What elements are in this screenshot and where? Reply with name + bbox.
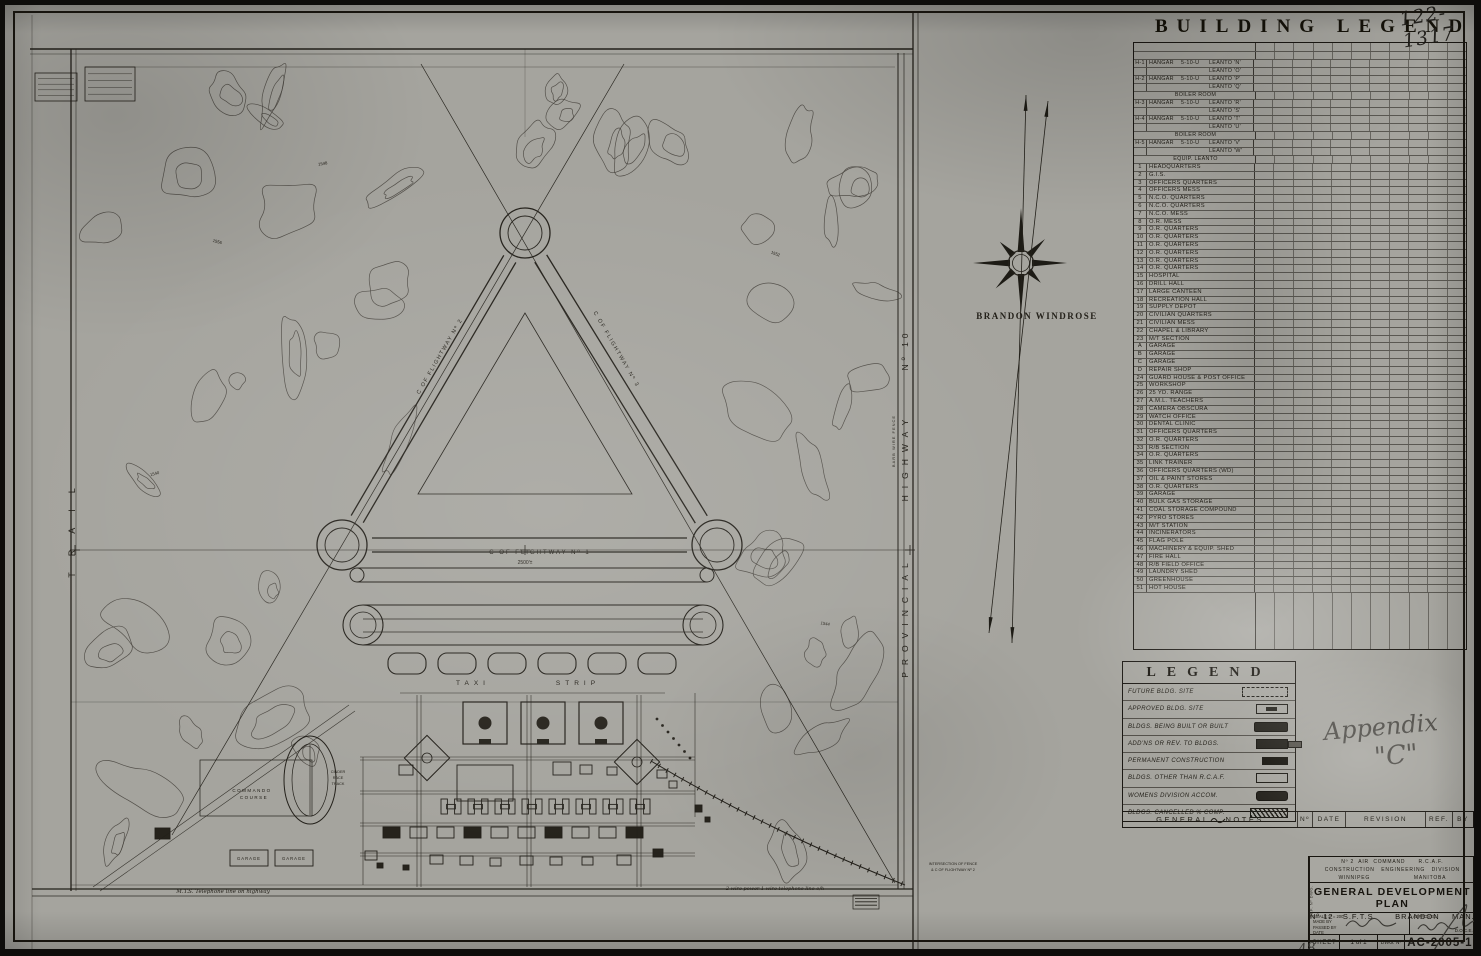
- legend-grid-cell: [1409, 273, 1428, 280]
- legend-row: AGARAGE: [1134, 343, 1466, 351]
- legend-grid-cell: [1255, 172, 1274, 179]
- map-label: & C OF FLIGHTWAY Nº 2: [931, 868, 975, 872]
- legend-grid-cell: [1313, 460, 1332, 467]
- legend-grid-cell: [1274, 351, 1293, 358]
- legend-grid-cell: [1274, 304, 1293, 311]
- legend-grid-cell: [1390, 445, 1409, 452]
- legend-grid-cell: [1313, 484, 1332, 491]
- legend-grid-cell: [1294, 258, 1313, 265]
- legend-grid-cell: [1409, 84, 1428, 91]
- legend-grid-cell: [1390, 172, 1409, 179]
- legend-grid-cell: [1352, 132, 1371, 139]
- legend-grid-cell: [1274, 265, 1293, 272]
- legend-grid-cell: [1332, 429, 1351, 436]
- legend-grid-cell: [1274, 164, 1293, 171]
- legend-grid-cell: [1313, 437, 1332, 444]
- legend-grid-cell: [1390, 468, 1409, 475]
- legend-grid-cell: [1370, 76, 1389, 83]
- legend-grid-cell: [1371, 375, 1390, 382]
- legend-grid-cell: [1274, 320, 1293, 327]
- legend-grid-cell: [1409, 312, 1428, 319]
- legend-grid-cell: [1294, 414, 1313, 421]
- legend-grid-cell: [1409, 108, 1428, 115]
- legend-grid-cell: [1254, 124, 1273, 131]
- legend-grid-cell: [1313, 507, 1332, 514]
- legend-grid-cell: [1409, 180, 1428, 187]
- legend-grid-cell: [1256, 132, 1275, 139]
- legend-grid-cell: [1275, 593, 1294, 649]
- legend-grid-cell: [1428, 398, 1447, 405]
- legend-grid-cell: [1390, 476, 1409, 483]
- legend-grid-cell: [1351, 414, 1370, 421]
- legend-grid-cell: [1390, 92, 1409, 99]
- legend-grid-cell: [1255, 562, 1274, 569]
- legend-grid-cell: [1255, 367, 1274, 374]
- legend-grid-cell: [1255, 437, 1274, 444]
- legend-grid-cell: [1428, 367, 1447, 374]
- legend-grid-cell: [1332, 258, 1351, 265]
- legend-grid-cell: [1448, 265, 1466, 272]
- legend-grid-cell: [1255, 320, 1274, 327]
- legend-row: 6N.C.O. QUARTERS: [1134, 203, 1466, 211]
- map-label: BARB WIRE FENCE: [891, 415, 896, 467]
- legend-grid-cell: [1332, 546, 1351, 553]
- legend-grid-cell: [1448, 60, 1466, 67]
- legend-grid-cell: [1371, 234, 1390, 241]
- legend-grid-cell: [1333, 43, 1352, 51]
- legend-grid-cell: [1313, 180, 1332, 187]
- legend-grid-cell: [1448, 554, 1466, 561]
- legend-grid-cell: [1390, 569, 1409, 576]
- legend-grid-cell: [1448, 359, 1466, 366]
- legend-grid-cell: [1274, 414, 1293, 421]
- legend-grid-cell: [1331, 140, 1350, 147]
- legend-grid-cell: [1410, 52, 1429, 60]
- legend-grid-cell: [1409, 523, 1428, 530]
- legend-grid-cell: [1428, 452, 1447, 459]
- legend-grid-cell: [1448, 593, 1466, 649]
- legend-row: 28CAMERA OBSCURA: [1134, 406, 1466, 414]
- legend-entry-label: WOMENS DIVISION ACCOM.: [1128, 793, 1218, 799]
- legend-grid-cell: [1313, 546, 1332, 553]
- legend-row: 16DRILL HALL: [1134, 281, 1466, 289]
- dwg-no-label: DWG. Nº: [1378, 935, 1405, 949]
- legend-grid-cell: [1274, 195, 1293, 202]
- legend-grid-cell: [1313, 390, 1332, 397]
- legend-grid-cell: [1255, 484, 1274, 491]
- legend-grid-cell: [1333, 593, 1352, 649]
- legend-grid-cell: [1333, 52, 1352, 60]
- legend-grid-cell: [1313, 499, 1332, 506]
- legend-grid-cell: [1409, 421, 1428, 428]
- legend-row: 46MACHINERY & EQUIP. SHED: [1134, 546, 1466, 554]
- legend-grid-cell: [1390, 515, 1409, 522]
- legend-grid-cell: [1448, 76, 1466, 83]
- legend-grid-cell: [1332, 343, 1351, 350]
- legend-grid-cell: [1313, 468, 1332, 475]
- legend-grid-cell: [1428, 390, 1447, 397]
- legend-grid-cell: [1371, 523, 1390, 530]
- legend-row: H-2HANGAR5-10-ULEANTO 'P': [1134, 76, 1466, 84]
- legend-grid-cell: [1255, 429, 1274, 436]
- legend-grid-cell: [1313, 304, 1332, 311]
- legend-grid-cell: [1294, 281, 1313, 288]
- legend-grid-cell: [1370, 124, 1389, 131]
- legend-grid-cell: [1429, 132, 1448, 139]
- legend-grid-cell: [1332, 406, 1351, 413]
- legend-grid-cell: [1409, 375, 1428, 382]
- legend-grid-cell: [1351, 124, 1370, 131]
- legend-grid-cell: [1274, 242, 1293, 249]
- legend-grid-cell: [1371, 515, 1390, 522]
- legend-row: 31OFFICERS QUARTERS: [1134, 429, 1466, 437]
- legend-grid-cell: [1255, 546, 1274, 553]
- legend-row: 21CIVILIAN MESS: [1134, 320, 1466, 328]
- legend-grid-cell: [1371, 172, 1390, 179]
- legend-grid-cell: [1275, 92, 1294, 99]
- map-label: 1544: [820, 620, 831, 627]
- legend-grid-cell: [1331, 100, 1350, 107]
- legend-grid-cell: [1409, 304, 1428, 311]
- windrose: [973, 95, 1067, 643]
- legend-grid-cell: [1390, 242, 1409, 249]
- legend-grid-cell: [1273, 100, 1292, 107]
- legend-grid-cell: [1274, 273, 1293, 280]
- legend-grid-cell: [1332, 312, 1351, 319]
- map-label: C OF FLIGHTWAY Nº 1: [489, 549, 590, 556]
- legend-grid-cell: [1390, 367, 1409, 374]
- legend-grid-cell: [1370, 60, 1389, 67]
- legend-grid-cell: [1294, 406, 1313, 413]
- legend-grid-cell: [1371, 195, 1390, 202]
- legend-grid-cell: [1351, 219, 1370, 226]
- legend-grid-cell: [1313, 452, 1332, 459]
- legend-grid-cell: [1428, 140, 1447, 147]
- dwg-no-value: AC-2005-1: [1405, 935, 1474, 949]
- legend-grid-cell: [1371, 460, 1390, 467]
- legend-grid-cell: [1428, 515, 1447, 522]
- appendix-line2: "C": [1373, 737, 1442, 774]
- legend-grid-cell: [1274, 359, 1293, 366]
- legend-grid-cell: [1371, 312, 1390, 319]
- legend-grid-cell: [1294, 273, 1313, 280]
- legend-row: LEANTO 'Q': [1134, 84, 1466, 92]
- legend-grid-cell: [1294, 304, 1313, 311]
- legend-grid-cell: [1294, 484, 1313, 491]
- legend-grid-cell: [1428, 242, 1447, 249]
- legend-row: 30DENTAL CLINIC: [1134, 421, 1466, 429]
- legend-grid-cell: [1390, 398, 1409, 405]
- legend-row: 40BULK GAS STORAGE: [1134, 499, 1466, 507]
- legend-grid-cell: [1448, 297, 1466, 304]
- legend-grid-cell: [1371, 414, 1390, 421]
- legend-grid-cell: [1313, 476, 1332, 483]
- legend-grid-cell: [1274, 406, 1293, 413]
- legend-grid-cell: [1332, 242, 1351, 249]
- legend-grid-cell: [1428, 382, 1447, 389]
- notes-label: NOTES: [1226, 815, 1264, 824]
- legend-grid-cell: [1371, 297, 1390, 304]
- legend-grid-cell: [1332, 367, 1351, 374]
- legend-grid-cell: [1371, 554, 1390, 561]
- legend-grid-cell: [1448, 577, 1466, 584]
- legend-grid-cell: [1332, 219, 1351, 226]
- legend-grid-cell: [1370, 84, 1389, 91]
- legend-grid-cell: [1351, 60, 1370, 67]
- title-block: REF. Nº DWG. Nº 2 AIR COMMAND R.C.A.F.CO…: [1308, 856, 1474, 949]
- legend-grid-cell: [1294, 538, 1313, 545]
- legend-grid-cell: [1351, 515, 1370, 522]
- legend-row: 27A.M.L. TEACHERS: [1134, 398, 1466, 406]
- legend-grid-cell: [1332, 499, 1351, 506]
- legend-row: 22CHAPEL & LIBRARY: [1134, 328, 1466, 336]
- legend-grid-cell: [1429, 52, 1448, 60]
- legend-grid-cell: [1274, 328, 1293, 335]
- legend-grid-cell: [1428, 585, 1447, 592]
- legend-row: DREPAIR SHOP: [1134, 367, 1466, 375]
- legend-grid-cell: [1371, 180, 1390, 187]
- legend-grid-cell: [1371, 359, 1390, 366]
- legend-grid-cell: [1448, 523, 1466, 530]
- legend-grid-cell: [1313, 297, 1332, 304]
- title-block-mid-row: SCALE 1" = 200' MADE BY PASSED BY DATE A…: [1310, 913, 1474, 935]
- legend-grid-cell: [1351, 258, 1370, 265]
- legend-grid-cell: [1351, 484, 1370, 491]
- legend-grid-cell: [1274, 382, 1293, 389]
- legend-row: 1HEADQUARTERS: [1134, 164, 1466, 172]
- legend-grid-cell: [1448, 187, 1466, 194]
- legend-grid-cell: [1351, 429, 1370, 436]
- legend-grid-cell: [1313, 242, 1332, 249]
- legend-grid-cell: [1448, 343, 1466, 350]
- legend-grid-cell: [1255, 328, 1274, 335]
- legend-grid-cell: [1448, 108, 1466, 115]
- legend-grid-cell: [1275, 132, 1294, 139]
- legend-grid-cell: [1390, 593, 1409, 649]
- legend-grid-cell: [1409, 445, 1428, 452]
- legend-grid-cell: [1294, 359, 1313, 366]
- legend-grid-cell: [1332, 460, 1351, 467]
- legend-grid-cell: [1332, 289, 1351, 296]
- legend-row: 17LARGE CANTEEN: [1134, 289, 1466, 297]
- legend-grid-cell: [1333, 92, 1352, 99]
- legend-grid-cell: [1390, 281, 1409, 288]
- legend-grid-cell: [1371, 484, 1390, 491]
- legend-grid-cell: [1313, 414, 1332, 421]
- legend-grid-cell: [1313, 203, 1332, 210]
- legend-grid-cell: [1332, 476, 1351, 483]
- legend-row: 14O.R. QUARTERS: [1134, 265, 1466, 273]
- legend-grid-cell: [1390, 577, 1409, 584]
- legend-row: 8O.R. MESS: [1134, 219, 1466, 227]
- legend-grid-cell: [1314, 156, 1333, 163]
- legend-grid-cell: [1274, 499, 1293, 506]
- legend-grid-cell: [1409, 414, 1428, 421]
- legend-grid-cell: [1294, 499, 1313, 506]
- legend-grid-cell: [1332, 390, 1351, 397]
- legend-grid-cell: [1314, 43, 1333, 51]
- legend-grid-cell: [1313, 367, 1332, 374]
- legend-grid-cell: [1409, 515, 1428, 522]
- approved-symbol-icon: [1256, 704, 1288, 714]
- legend-grid-cell: [1448, 484, 1466, 491]
- legend-grid-cell: [1332, 437, 1351, 444]
- legend-grid-cell: [1390, 554, 1409, 561]
- legend-grid-cell: [1256, 52, 1275, 60]
- legend-grid-cell: [1255, 312, 1274, 319]
- legend-grid-cell: [1255, 414, 1274, 421]
- legend-grid-cell: [1294, 180, 1313, 187]
- legend-grid-cell: [1448, 140, 1466, 147]
- legend-grid-cell: [1390, 523, 1409, 530]
- approved-label: APPROVED: [1413, 914, 1436, 919]
- legend-grid-cell: [1332, 538, 1351, 545]
- legend-row: 10O.R. QUARTERS: [1134, 234, 1466, 242]
- legend-grid-cell: [1370, 100, 1389, 107]
- legend-grid-cell: [1332, 507, 1351, 514]
- approved-cell: APPROVED D.O.C.E.: [1410, 913, 1474, 934]
- legend-grid-cell: [1390, 164, 1409, 171]
- legend-grid-cell: [1312, 60, 1331, 67]
- map-label: CINDER: [331, 770, 346, 774]
- legend-grid-cell: [1448, 320, 1466, 327]
- legend-grid-cell: [1448, 258, 1466, 265]
- legend-row: H-5HANGAR5-10-ULEANTO 'V': [1134, 140, 1466, 148]
- legend-grid-cell: [1390, 414, 1409, 421]
- legend-grid-cell: [1371, 226, 1390, 233]
- legend-grid-cell: [1274, 491, 1293, 498]
- legend-grid-cell: [1428, 437, 1447, 444]
- legend-grid-cell: [1352, 43, 1371, 51]
- legend-grid-cell: [1313, 375, 1332, 382]
- legend-grid-cell: [1332, 187, 1351, 194]
- legend-grid-cell: [1312, 76, 1331, 83]
- legend-grid-cell: [1313, 258, 1332, 265]
- legend-grid-cell: [1428, 562, 1447, 569]
- legend-grid-cell: [1428, 211, 1447, 218]
- legend-grid-cell: [1351, 452, 1370, 459]
- legend-grid-cell: [1390, 180, 1409, 187]
- legend-grid-cell: [1390, 538, 1409, 545]
- legend-grid-cell: [1370, 148, 1389, 155]
- legend-grid-cell: [1448, 569, 1466, 576]
- legend-grid-cell: [1390, 375, 1409, 382]
- legend-grid-cell: [1371, 203, 1390, 210]
- revision-col-n: Nº: [1298, 812, 1313, 827]
- legend-grid-cell: [1390, 460, 1409, 467]
- legend-grid-cell: [1351, 108, 1370, 115]
- legend-grid-cell: [1255, 375, 1274, 382]
- legend-grid-cell: [1390, 491, 1409, 498]
- legend-grid-cell: [1351, 265, 1370, 272]
- legend-grid-cell: [1294, 226, 1313, 233]
- map-label: GARAGE: [237, 856, 261, 861]
- legend-grid-cell: [1294, 507, 1313, 514]
- legend-grid-cell: [1255, 226, 1274, 233]
- legend-grid-cell: [1371, 445, 1390, 452]
- map-label: 2500'±: [518, 560, 533, 566]
- legend-grid-cell: [1448, 491, 1466, 498]
- legend-entry-label: APPROVED BLDG. SITE: [1128, 706, 1204, 712]
- legend-grid-cell: [1255, 359, 1274, 366]
- legend-row: H-4HANGAR5-10-ULEANTO 'T': [1134, 116, 1466, 124]
- legend-grid-cell: [1255, 273, 1274, 280]
- legend-grid-cell: [1371, 585, 1390, 592]
- legend-grid-cell: [1409, 219, 1428, 226]
- legend-grid-cell: [1313, 569, 1332, 576]
- legend-grid-cell: [1371, 437, 1390, 444]
- legend-grid-cell: [1351, 406, 1370, 413]
- legend-grid-cell: [1371, 265, 1390, 272]
- legend-grid-cell: [1448, 124, 1466, 131]
- legend-grid-cell: [1371, 281, 1390, 288]
- legend-row: 39GARAGE: [1134, 491, 1466, 499]
- legend-grid-cell: [1313, 429, 1332, 436]
- legend-grid-cell: [1448, 468, 1466, 475]
- legend-grid-cell: [1428, 484, 1447, 491]
- legend-grid-cell: [1255, 569, 1274, 576]
- legend-grid-cell: [1313, 538, 1332, 545]
- legend-grid-cell: [1390, 195, 1409, 202]
- legend-grid-cell: [1332, 452, 1351, 459]
- legend-grid-cell: [1273, 124, 1292, 131]
- legend-row: 5N.C.O. QUARTERS: [1134, 195, 1466, 203]
- legend-grid-cell: [1428, 375, 1447, 382]
- legend-grid-cell: [1448, 226, 1466, 233]
- legend-grid-cell: [1390, 585, 1409, 592]
- legend-grid-cell: [1409, 367, 1428, 374]
- legend-grid-cell: [1448, 390, 1466, 397]
- legend-grid-cell: [1351, 68, 1370, 75]
- legend-grid-cell: [1274, 421, 1293, 428]
- legend-grid-cell: [1313, 554, 1332, 561]
- legend-grid-cell: [1371, 250, 1390, 257]
- legend-grid-cell: [1390, 84, 1409, 91]
- legend-grid-cell: [1274, 297, 1293, 304]
- legend-grid-cell: [1371, 390, 1390, 397]
- legend-grid-cell: [1409, 336, 1428, 343]
- legend-grid-cell: [1332, 585, 1351, 592]
- legend-grid-cell: [1254, 116, 1273, 123]
- legend-grid-cell: [1313, 585, 1332, 592]
- legend-grid-cell: [1313, 211, 1332, 218]
- pencil-mark: 48: [1297, 940, 1316, 949]
- legend-grid-cell: [1352, 156, 1371, 163]
- legend-grid-cell: [1448, 52, 1466, 60]
- legend-grid-cell: [1409, 187, 1428, 194]
- legend-grid-cell: [1332, 421, 1351, 428]
- legend-grid-cell: [1294, 593, 1313, 649]
- legend-grid-cell: [1274, 187, 1293, 194]
- legend-grid-cell: [1255, 445, 1274, 452]
- legend-grid-cell: [1371, 367, 1390, 374]
- legend-grid-cell: [1274, 429, 1293, 436]
- legend-grid-cell: [1313, 320, 1332, 327]
- legend-grid-cell: [1448, 546, 1466, 553]
- map-label: TAXI: [456, 680, 490, 687]
- legend-grid-cell: [1390, 382, 1409, 389]
- legend-grid-cell: [1390, 530, 1409, 537]
- legend-row: 43M/T STATION: [1134, 523, 1466, 531]
- legend-grid-cell: [1428, 491, 1447, 498]
- legend-grid-cell: [1370, 140, 1389, 147]
- legend-grid-cell: [1409, 382, 1428, 389]
- legend-grid-cell: [1428, 336, 1447, 343]
- legend-grid-cell: [1428, 265, 1447, 272]
- legend-grid-cell: [1448, 515, 1466, 522]
- legend-grid-cell: [1333, 156, 1352, 163]
- legend-grid-cell: [1390, 484, 1409, 491]
